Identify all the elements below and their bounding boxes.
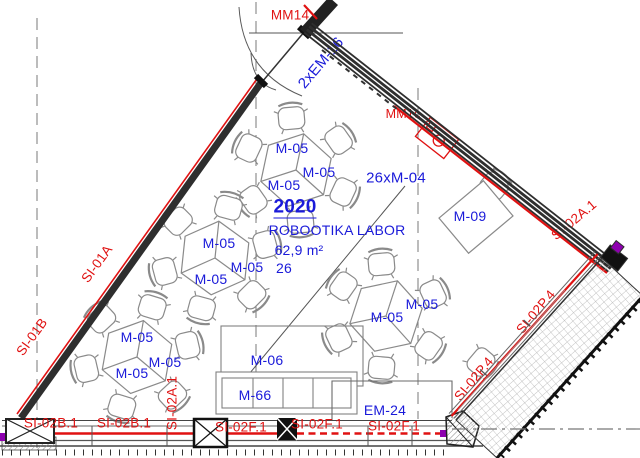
floor-plan: 2020ROBOOTIKA LABOR62,9 m²262xEM-1626xM-… [0,0,640,458]
wall-top-right-red-finish-line [394,106,607,273]
plan-wall-overlay [0,0,640,458]
wall-shadow-dashes [322,50,398,110]
wall-bottom-right-hatched [449,252,640,458]
wall-top-right-glazed [304,5,632,273]
mm14-red-tick [304,5,317,19]
